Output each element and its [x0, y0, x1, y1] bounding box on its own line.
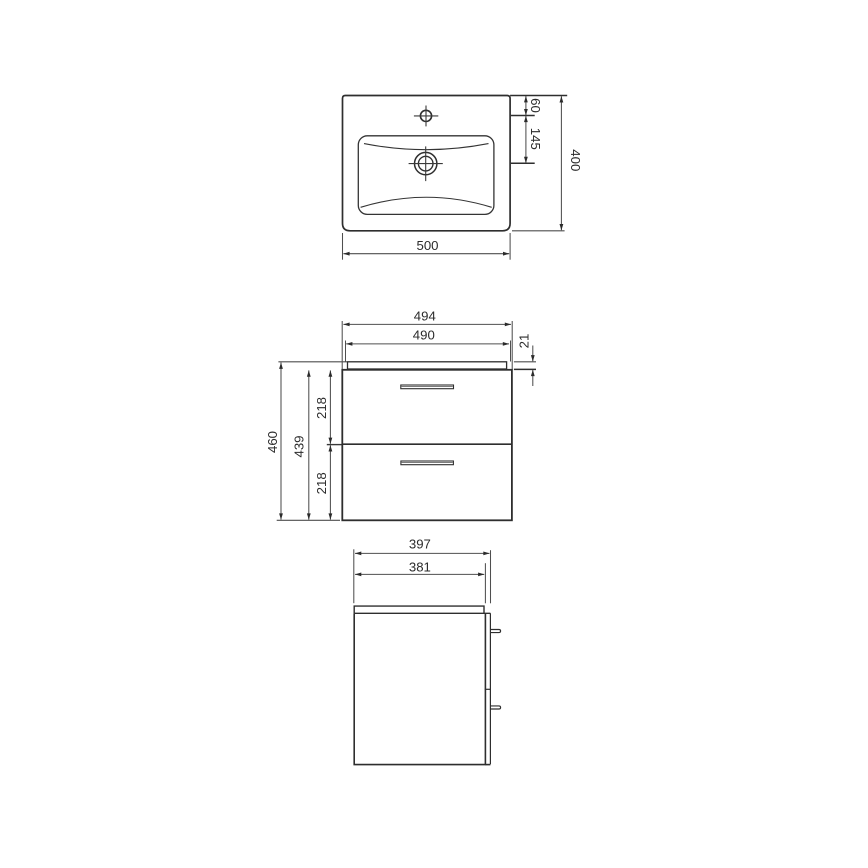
svg-text:21: 21 — [517, 334, 532, 349]
svg-text:494: 494 — [414, 308, 436, 323]
svg-text:439: 439 — [292, 435, 307, 457]
svg-text:397: 397 — [409, 537, 431, 552]
svg-text:145: 145 — [528, 128, 543, 150]
svg-text:460: 460 — [265, 431, 280, 453]
svg-text:400: 400 — [568, 149, 583, 171]
svg-text:218: 218 — [314, 397, 329, 419]
svg-text:381: 381 — [409, 559, 431, 574]
svg-text:500: 500 — [416, 238, 438, 253]
svg-text:218: 218 — [314, 472, 329, 494]
svg-text:60: 60 — [528, 98, 543, 113]
svg-text:490: 490 — [413, 328, 435, 343]
